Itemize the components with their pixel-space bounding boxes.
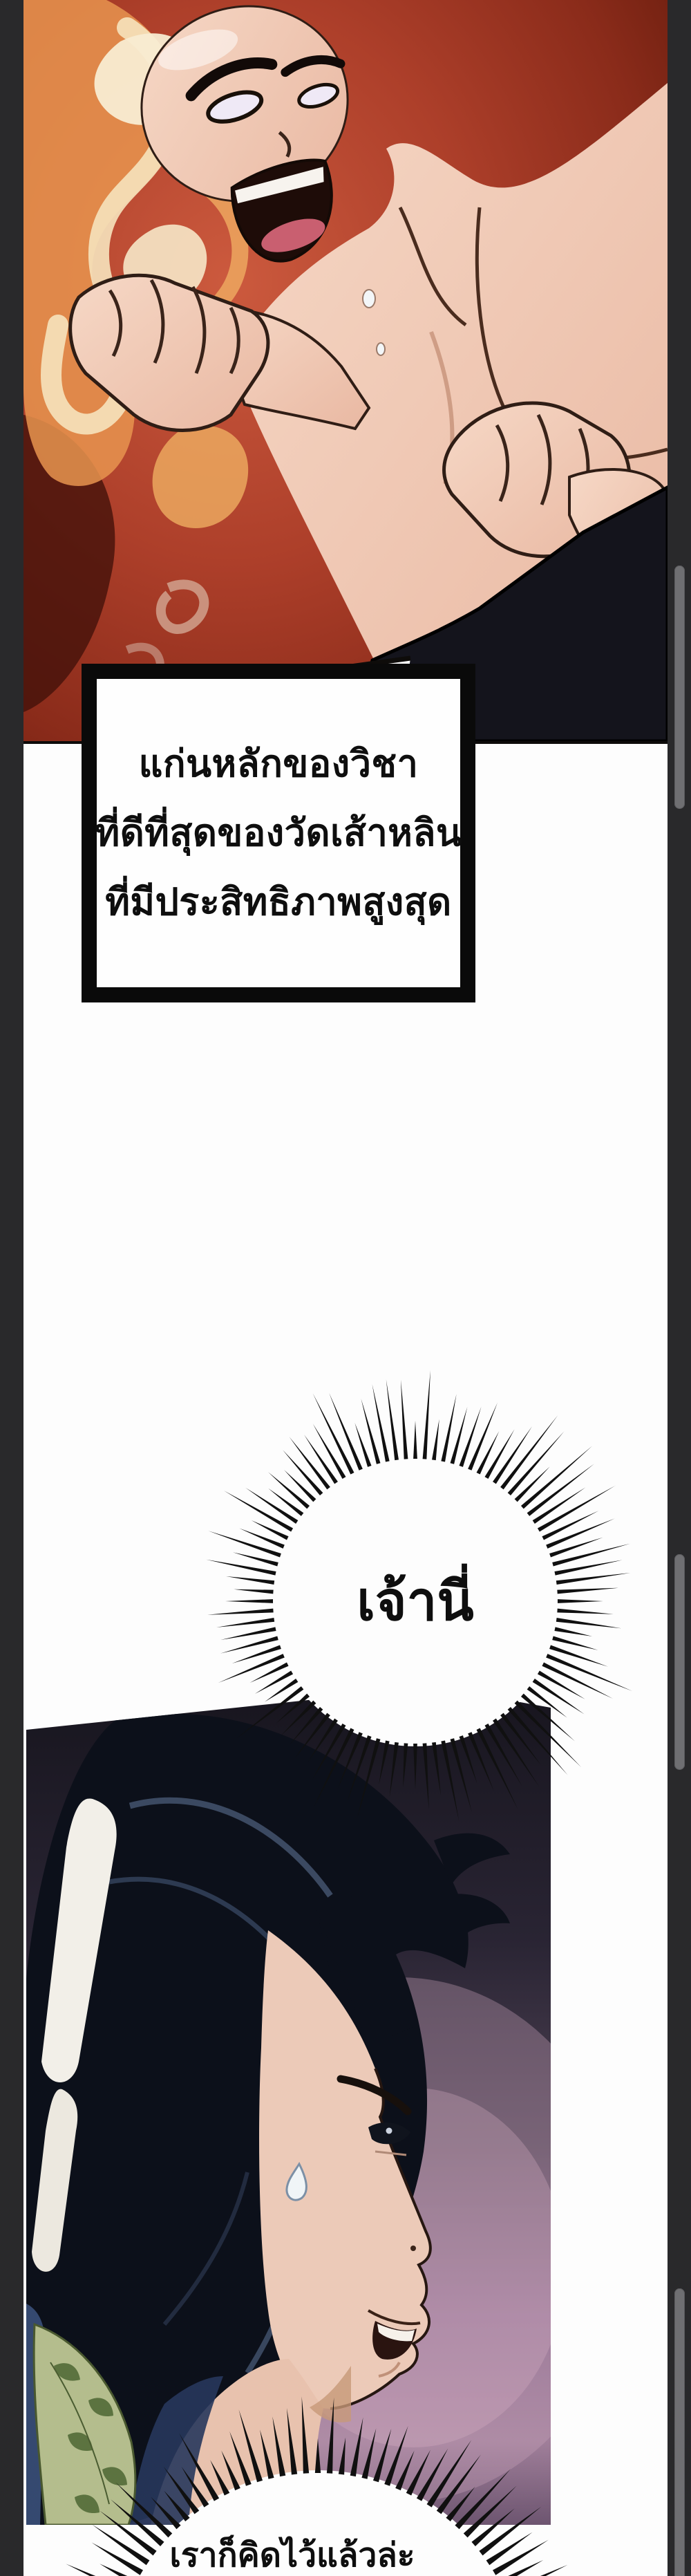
left-gutter bbox=[0, 0, 23, 2576]
panel-shouting-warrior bbox=[23, 0, 668, 744]
speech-burst-top-text: เจ้านี่ bbox=[357, 1558, 473, 1644]
narration-box: แก่นหลักของวิชา ที่ดีที่สุดของวัดเส้าหลิ… bbox=[82, 664, 475, 1002]
speech-burst-bottom-text: เราก็คิดไว้แล้วล่ะ bbox=[169, 2529, 415, 2576]
panel1-artwork-svg bbox=[23, 0, 668, 741]
narration-line: แก่นหลักของวิชา bbox=[139, 729, 419, 799]
narration-line: ที่ดีที่สุดของวัดเส้าหลิน bbox=[95, 799, 462, 868]
panel2-artwork-svg bbox=[26, 1687, 551, 2525]
scrollbar-thumb[interactable] bbox=[674, 1554, 685, 1770]
scrollbar-thumb[interactable] bbox=[674, 566, 685, 809]
scrollbar-thumb[interactable] bbox=[674, 2288, 685, 2576]
panel-ponytail-man bbox=[26, 1687, 551, 2525]
comic-strip: แก่นหลักของวิชา ที่ดีที่สุดของวัดเส้าหลิ… bbox=[23, 0, 668, 2576]
narration-line: ที่มีประสิทธิภาพสูงสุด bbox=[105, 868, 451, 937]
scrollbar-track[interactable] bbox=[668, 0, 691, 2576]
comic-reader-page: แก่นหลักของวิชา ที่ดีที่สุดของวัดเส้าหลิ… bbox=[0, 0, 691, 2576]
